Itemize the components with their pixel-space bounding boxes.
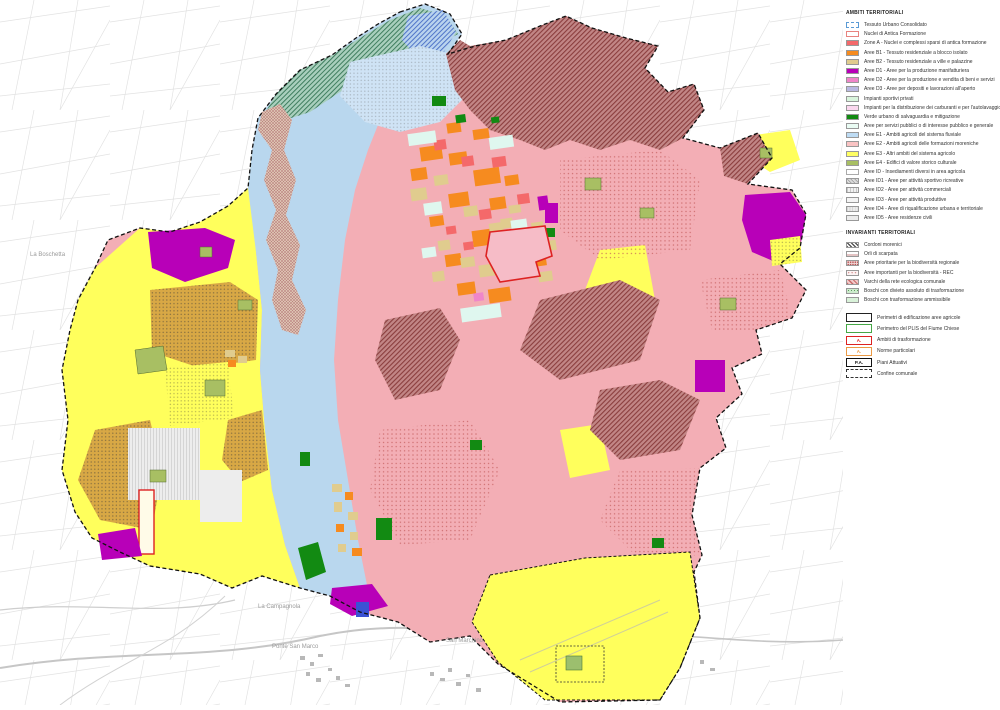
- legend-item-confine-comunale: Confine comunale: [846, 369, 998, 378]
- swatch-aree-e1: [846, 132, 859, 138]
- legend-item-norme-particolari: A.Norme particolari: [846, 347, 998, 356]
- box-inner-label: P.A.: [855, 360, 863, 365]
- swatch-aree-e4: [846, 160, 859, 166]
- zone-id-gray: [128, 428, 200, 500]
- zone-blue-facility: [356, 602, 369, 617]
- swatch-biodiversita-regionale: [846, 260, 859, 266]
- legend-item-plis: Perimetro del PLIS del Fiume Chiese: [846, 324, 998, 333]
- box-piani-attuativi: P.A.: [846, 358, 872, 367]
- legend-item-cordoni: Cordoni morenici: [846, 242, 998, 248]
- legend-item-boschi-ammissibile: Boschi con trasformazione ammissibile: [846, 297, 998, 303]
- legend-item-naf: Nuclei di Antica Formazione: [846, 31, 998, 37]
- legend-item-boschi-divieto: Boschi con divieto assoluto di trasforma…: [846, 288, 998, 294]
- legend-item-zonea: Zone A - Nuclei e complessi sparsi di an…: [846, 40, 998, 46]
- legend-item-e2: Aree E2 - Ambiti agricoli delle formazio…: [846, 141, 998, 147]
- legend-item-id3: Aree ID3 - Aree per attività produttive: [846, 197, 998, 203]
- swatch-aree-id4: [846, 206, 859, 212]
- place-label: La Campagnola: [258, 604, 301, 610]
- legend-section-invarianti-title: INVARIANTI TERRITORIALI: [846, 230, 998, 236]
- legend-item-id1: Aree ID1 - Aree per attività sportivo ri…: [846, 178, 998, 184]
- legend-item-d3: Aree D3 - Aree per depositi e lavorazion…: [846, 86, 998, 92]
- legend-item-e4: Aree E4 - Edifici di valore storico cult…: [846, 160, 998, 166]
- swatch-impianti-carburanti: [846, 105, 859, 111]
- swatch-aree-id1: [846, 178, 859, 184]
- swatch-aree-b2: [846, 59, 859, 65]
- swatch-aree-b1: [846, 50, 859, 56]
- legend-item-carburanti: Impianti per la distribuzione dei carbur…: [846, 105, 998, 111]
- swatch-tessuto-urbano: [846, 22, 859, 28]
- legend-item-id2: Aree ID2 - Aree per attività commerciali: [846, 187, 998, 193]
- plan-sheet: La Boschetta La Campagnola Ponte San Mar…: [0, 0, 1000, 705]
- legend-item-verde: Verde urbano di salvaguardia e mitigazio…: [846, 114, 998, 120]
- legend-item-perimetri-agricole: Perimetri di edificazione aree agricole: [846, 313, 998, 322]
- legend-item-bio-regionale: Aree prioritarie per la biodiversità reg…: [846, 260, 998, 266]
- legend-item-varchi: Varchi della rete ecologica comunale: [846, 279, 998, 285]
- swatch-aree-id5: [846, 215, 859, 221]
- legend-item-d2: Aree D2 - Aree per la produzione e vendi…: [846, 77, 998, 83]
- legend-item-e1: Aree E1 - Ambiti agricoli del sistema fl…: [846, 132, 998, 138]
- box-ambiti-trasformazione: A.: [846, 336, 872, 345]
- legend-section-ambiti-title: AMBITI TERRITORIALI: [846, 10, 998, 16]
- swatch-aree-e3: [846, 151, 859, 157]
- swatch-impianti-sportivi: [846, 96, 859, 102]
- legend-item-id5: Aree ID5 - Aree residenze civili: [846, 215, 998, 221]
- legend-item-id4: Aree ID4 - Aree di riqualificazione urba…: [846, 206, 998, 212]
- legend-item-b1: Aree B1 - Tessuto residenziale a blocco …: [846, 50, 998, 56]
- box-perimetri-agricole: [846, 313, 872, 322]
- swatch-biodiversita-rec: [846, 270, 859, 276]
- swatch-boschi-divieto: [846, 288, 859, 294]
- swatch-cordoni-morenici: [846, 242, 859, 248]
- box-norme-particolari: A.: [846, 347, 872, 356]
- legend-item-orli: Orli di scarpata: [846, 251, 998, 257]
- place-label: La Boschetta: [30, 252, 66, 258]
- box-inner-label: A.: [857, 338, 862, 343]
- legend-item-piani-attuativi: P.A.Piani Attuativi: [846, 358, 998, 367]
- legend-item-id: Aree ID - Insediamenti diversi in area a…: [846, 169, 998, 175]
- legend-panel: AMBITI TERRITORIALI Tessuto Urbano Conso…: [846, 10, 998, 380]
- swatch-aree-id2: [846, 187, 859, 193]
- swatch-servizi-pubblici: [846, 123, 859, 129]
- box-confine-comunale: [846, 369, 872, 378]
- legend-item-tuc: Tessuto Urbano Consolidato: [846, 22, 998, 28]
- place-label: San Marchino: [446, 638, 484, 644]
- legend-item-bio-rec: Aree importanti per la biodiversità - RE…: [846, 270, 998, 276]
- swatch-aree-id3: [846, 197, 859, 203]
- swatch-zone-a: [846, 40, 859, 46]
- box-perimetro-plis: [846, 324, 872, 333]
- swatch-orli-scarpata: [846, 251, 859, 257]
- zoning-map[interactable]: La Boschetta La Campagnola Ponte San Mar…: [0, 0, 843, 705]
- swatch-nuclei-antica-formazione: [846, 31, 859, 37]
- place-label: Ponte San Marco: [272, 644, 319, 650]
- swatch-aree-id: [846, 169, 859, 175]
- swatch-boschi-ammissibile: [846, 297, 859, 303]
- legend-item-e3: Aree E3 - Altri ambiti del sistema agric…: [846, 151, 998, 157]
- swatch-verde-urbano: [846, 114, 859, 120]
- legend-item-ambiti-trasformazione: A.Ambiti di trasformazione: [846, 336, 998, 345]
- swatch-varchi-ecologici: [846, 279, 859, 285]
- swatch-aree-e2: [846, 141, 859, 147]
- box-inner-label: A.: [857, 349, 862, 354]
- legend-item-servizi: Aree per servizi pubblici o di interesse…: [846, 123, 998, 129]
- legend-item-d1: Aree D1 - Aree per la produzione manifat…: [846, 68, 998, 74]
- legend-item-sport: Impianti sportivi privati: [846, 96, 998, 102]
- at-strip-west: [139, 490, 154, 554]
- legend-item-b2: Aree B2 - Tessuto residenziale a ville e…: [846, 59, 998, 65]
- swatch-aree-d1: [846, 68, 859, 74]
- swatch-aree-d3: [846, 86, 859, 92]
- swatch-aree-d2: [846, 77, 859, 83]
